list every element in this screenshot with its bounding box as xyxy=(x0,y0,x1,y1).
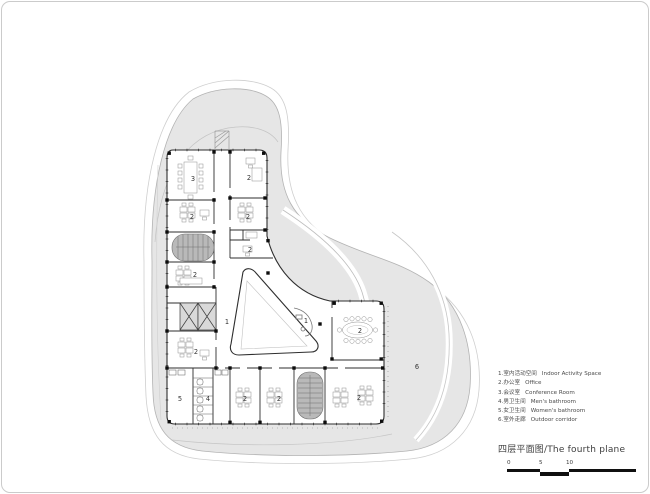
legend-en: Women's bathroom xyxy=(531,408,585,414)
room-label: 1 xyxy=(225,318,229,326)
room-label: 2 xyxy=(248,246,252,254)
legend-zh: 6.室外走廊 xyxy=(498,417,526,423)
room-label: 1 xyxy=(304,317,308,325)
room-label: 5 xyxy=(178,395,182,403)
elevator-icons xyxy=(180,303,216,330)
legend-en: Outdoor corridor xyxy=(531,417,577,423)
scale-bar: 0 5 10 xyxy=(506,460,640,480)
room-label: 2 xyxy=(246,213,250,221)
legend-zh: 4.男卫生间 xyxy=(498,399,526,405)
room-label: 2 xyxy=(358,327,362,335)
scale-label-10: 10 xyxy=(566,460,573,466)
room-label: 2 xyxy=(193,271,197,279)
legend-zh: 5.女卫生间 xyxy=(498,408,526,414)
room-label: 3 xyxy=(191,175,195,183)
legend-en: Office xyxy=(525,380,541,386)
legend-zh: 1.室内活动空间 xyxy=(498,371,537,377)
room-label: 2 xyxy=(277,395,281,403)
scale-bar-segment xyxy=(507,469,540,472)
legend-en: Indoor Activity Space xyxy=(542,371,601,377)
room-label: 2 xyxy=(247,174,251,182)
room-label: 4 xyxy=(206,395,210,403)
room-label: 2 xyxy=(194,348,198,356)
room-label: 2 xyxy=(243,395,247,403)
legend-en: Men's bathroom xyxy=(531,399,576,405)
room-label: 2 xyxy=(357,394,361,402)
scale-label-5: 5 xyxy=(539,460,543,466)
legend-zh: 2.办公室 xyxy=(498,380,520,386)
legend-item: 1.室内活动空间Indoor Activity Space xyxy=(498,370,601,379)
legend: 1.室内活动空间Indoor Activity Space 2.办公室Offic… xyxy=(498,370,601,426)
legend-item: 6.室外走廊Outdoor corridor xyxy=(498,416,601,425)
legend-item: 2.办公室Office xyxy=(498,379,601,388)
floor-plan-sheet: 3 2 2 2 2 2 2 1 1 2 6 5 4 2 2 2 1.室内活动空间… xyxy=(0,0,650,494)
scale-bar-segment xyxy=(540,472,569,475)
room-label: 6 xyxy=(415,363,419,371)
legend-en: Conference Room xyxy=(525,390,575,396)
stair-top-icon xyxy=(172,234,214,261)
legend-zh: 3.会议室 xyxy=(498,390,520,396)
room-label: 2 xyxy=(190,213,194,221)
legend-item: 4.男卫生间Men's bathroom xyxy=(498,398,601,407)
legend-item: 3.会议室Conference Room xyxy=(498,389,601,398)
legend-item: 5.女卫生间Women's bathroom xyxy=(498,407,601,416)
page-title: 四层平面图/The fourth plane xyxy=(498,442,625,455)
stair-bottom-icon xyxy=(297,372,323,419)
scale-label-0: 0 xyxy=(507,460,511,466)
scale-bar-segment xyxy=(569,469,636,472)
